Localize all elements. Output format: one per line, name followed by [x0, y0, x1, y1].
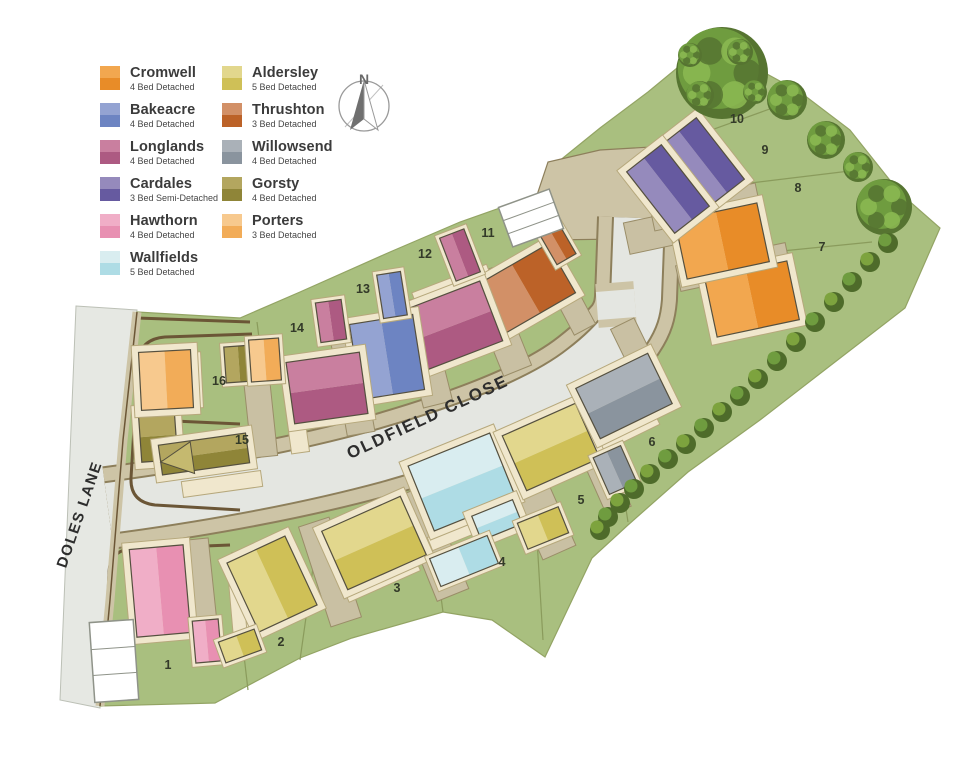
plot-number-1: 1: [165, 658, 172, 672]
garage-porters: [244, 334, 285, 387]
legend-house-desc: 4 Bed Detached: [252, 194, 317, 203]
plot-number-15: 15: [235, 433, 249, 447]
compass-north-label: N: [359, 71, 369, 87]
legend-house-name: Willowsend: [252, 140, 333, 155]
legend-house-name: Longlands: [130, 140, 204, 155]
legend-house-desc: 4 Bed Detached: [130, 120, 195, 129]
legend-item-longlands: Longlands4 Bed Detached: [100, 140, 222, 164]
legend-swatch: [222, 177, 242, 201]
plot-number-4: 4: [499, 555, 506, 569]
plot-number-11: 11: [481, 226, 494, 240]
legend-item-gorsty: Gorsty4 Bed Detached: [222, 177, 333, 201]
legend-house-name: Bakeacre: [130, 103, 195, 118]
legend-item-wallfields: Wallfields5 Bed Detached: [100, 251, 222, 275]
legend-house-desc: 4 Bed Detached: [252, 157, 333, 166]
legend-item-cromwell: Cromwell4 Bed Detached: [100, 66, 222, 90]
garage-longlands: [311, 295, 351, 347]
legend-item-bakeacre: Bakeacre4 Bed Detached: [100, 103, 222, 127]
plot-number-10: 10: [730, 112, 744, 126]
legend-house-name: Cardales: [130, 177, 218, 192]
legend-house-desc: 4 Bed Detached: [130, 83, 196, 92]
house-longlands-plot-14: [278, 344, 376, 432]
legend-swatch: [222, 140, 242, 164]
plot-number-16: 16: [212, 374, 226, 388]
legend-house-name: Cromwell: [130, 66, 196, 81]
legend-house-desc: 5 Bed Detached: [252, 83, 318, 92]
site-plan-page: 12345678910111213141516OLDFIELD CLOSEDOL…: [0, 0, 966, 768]
plot-number-5: 5: [578, 493, 585, 507]
legend-house-name: Wallfields: [130, 251, 198, 266]
legend-swatch: [100, 66, 120, 90]
legend-item-aldersley: Aldersley5 Bed Detached: [222, 66, 333, 90]
plot-number-9: 9: [762, 143, 769, 157]
legend-swatch: [100, 177, 120, 201]
legend-house-name: Aldersley: [252, 66, 318, 81]
parking-bays-south: [89, 620, 138, 703]
legend-house-desc: 3 Bed Detached: [252, 120, 325, 129]
legend-item-hawthorn: Hawthorn4 Bed Detached: [100, 214, 222, 238]
legend-swatch: [222, 66, 242, 90]
legend-item-porters: Porters3 Bed Detached: [222, 214, 333, 238]
plot-number-13: 13: [356, 282, 370, 296]
legend-swatch: [222, 214, 242, 238]
legend-swatch: [100, 214, 120, 238]
house-porters-plot-16: [131, 342, 201, 417]
plot-number-7: 7: [819, 240, 826, 254]
legend-house-desc: 4 Bed Detached: [130, 157, 204, 166]
legend-column-1: Cromwell4 Bed DetachedBakeacre4 Bed Deta…: [100, 66, 222, 288]
legend-column-2: Aldersley5 Bed DetachedThrushton3 Bed De…: [222, 66, 333, 288]
legend-swatch: [100, 140, 120, 164]
plot-number-12: 12: [418, 247, 432, 261]
legend-swatch: [222, 103, 242, 127]
legend-house-desc: 3 Bed Detached: [252, 231, 317, 240]
legend-item-thrushton: Thrushton3 Bed Detached: [222, 103, 333, 127]
compass-needle-dark: [350, 80, 364, 130]
compass-rose: N: [339, 71, 389, 131]
legend-house-name: Thrushton: [252, 103, 325, 118]
compass-needle-light: [364, 80, 378, 130]
legend: Cromwell4 Bed DetachedBakeacre4 Bed Deta…: [100, 66, 333, 288]
plot-number-6: 6: [649, 435, 656, 449]
legend-swatch: [100, 251, 120, 275]
legend-house-desc: 3 Bed Semi-Detached: [130, 194, 218, 203]
plot-number-8: 8: [795, 181, 802, 195]
plot-number-3: 3: [394, 581, 401, 595]
legend-house-name: Hawthorn: [130, 214, 198, 229]
legend-house-desc: 5 Bed Detached: [130, 268, 198, 277]
plot-number-2: 2: [278, 635, 285, 649]
legend-swatch: [100, 103, 120, 127]
legend-house-desc: 4 Bed Detached: [130, 231, 198, 240]
legend-house-name: Porters: [252, 214, 317, 229]
plot-number-14: 14: [290, 321, 304, 335]
legend-house-name: Gorsty: [252, 177, 317, 192]
legend-item-cardales: Cardales3 Bed Semi-Detached: [100, 177, 222, 201]
legend-item-willowsend: Willowsend4 Bed Detached: [222, 140, 333, 164]
